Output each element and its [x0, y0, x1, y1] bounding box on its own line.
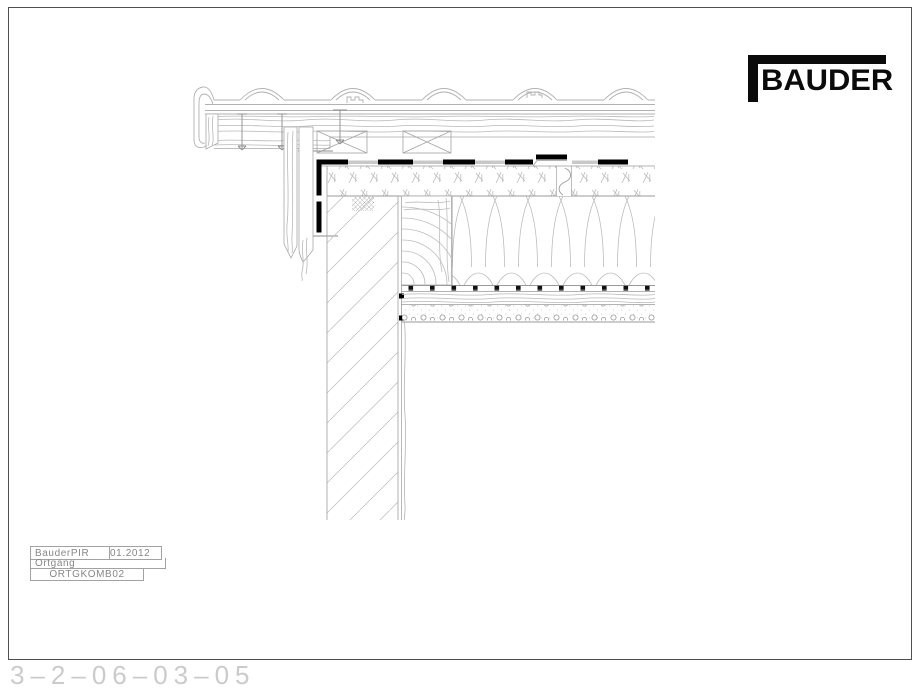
- insulation-joint: [557, 166, 572, 196]
- drawing-number: 3–2–06–03–05: [10, 661, 256, 689]
- logo-left-bar: [748, 55, 758, 102]
- pir-insulation-layer: [327, 166, 655, 196]
- verge-board-inner: [299, 127, 313, 281]
- detail-drawing: [0, 0, 920, 690]
- roof-tiles: [194, 87, 655, 148]
- ceiling-lining: [401, 305, 655, 323]
- ceiling-boarding: [401, 294, 655, 305]
- masonry-wall: [327, 196, 398, 520]
- drawing-code: ORTGKOMB02: [30, 568, 144, 581]
- mineral-wool-layer: [452, 196, 655, 285]
- page: BAUDER BauderPIR 01.2012 Ortgang ORTGKOM…: [0, 0, 920, 690]
- logo-top-bar: [748, 55, 886, 64]
- ceiling-assembly: [399, 286, 655, 323]
- counter-battens: [317, 131, 451, 153]
- logo-wordmark: BAUDER: [761, 66, 893, 96]
- bauder-logo: BAUDER: [748, 55, 888, 103]
- interior-plaster: [402, 322, 406, 520]
- fascia-end-block: [206, 114, 218, 149]
- verge-board-outer: [284, 127, 297, 258]
- tile-interlock-icon: [347, 92, 542, 103]
- verge-boards: [284, 127, 313, 281]
- mortar-bed: [352, 197, 374, 211]
